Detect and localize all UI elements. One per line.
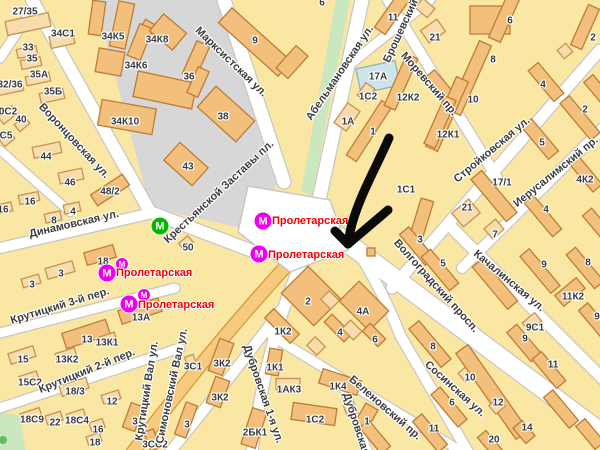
- annotation-layer: [0, 0, 600, 450]
- hand-drawn-arrow: [335, 138, 389, 244]
- map-canvas[interactable]: 27/3534С134К534К8333534К635А3632/3635Б0С…: [0, 0, 600, 450]
